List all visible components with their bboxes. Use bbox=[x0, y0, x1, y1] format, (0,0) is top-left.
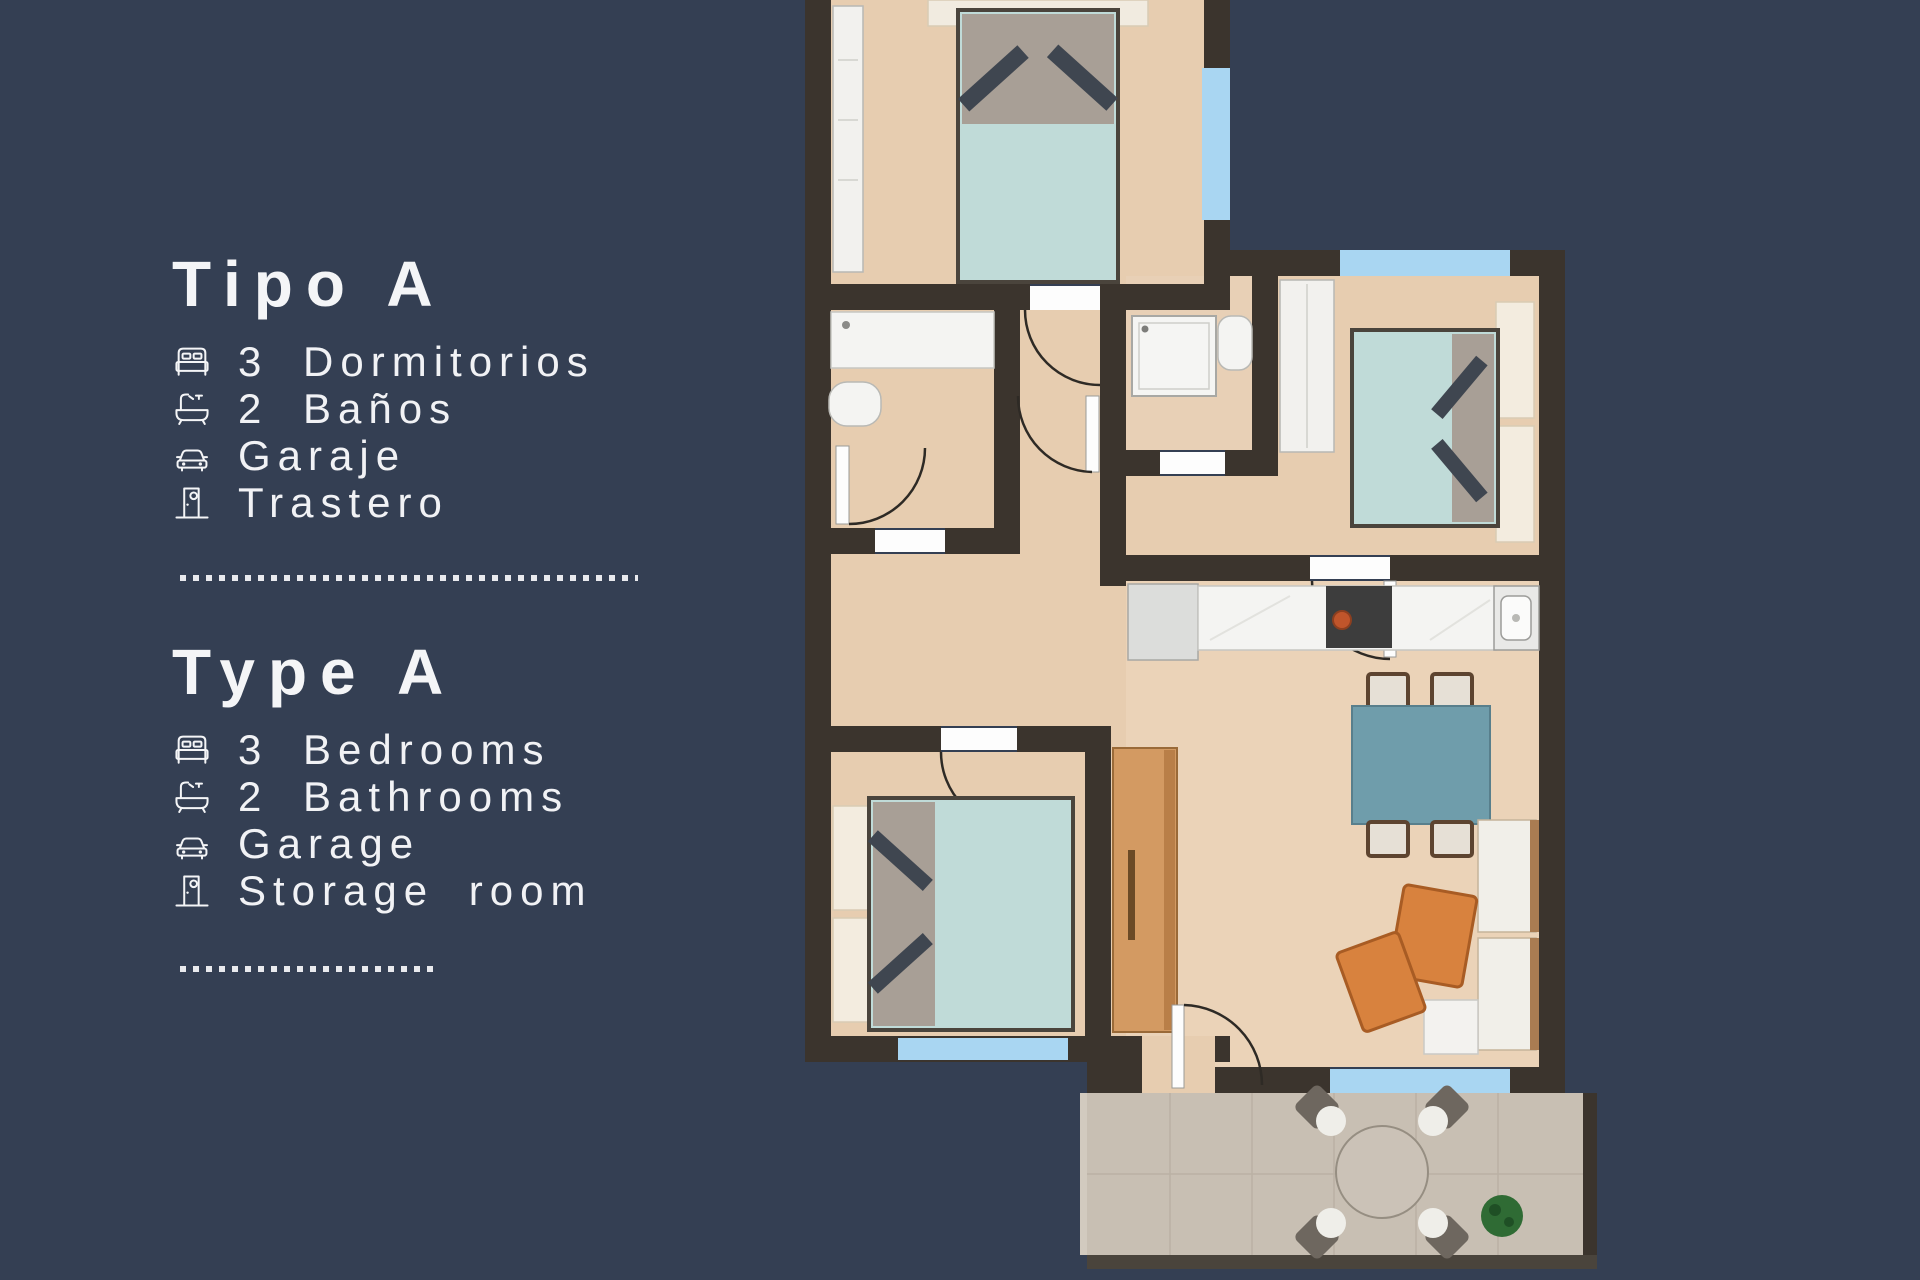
bed-icon bbox=[172, 342, 212, 382]
feature-row: 2 Baños bbox=[172, 385, 595, 432]
car-icon bbox=[172, 436, 212, 476]
feature-row: Garage bbox=[172, 820, 592, 867]
feature-row: 3 Dormitorios bbox=[172, 338, 595, 385]
doorway bbox=[941, 728, 1017, 750]
window-bedroom1 bbox=[1202, 68, 1230, 220]
dining-table bbox=[1352, 706, 1490, 824]
headboard bbox=[833, 918, 869, 1022]
sofa bbox=[1478, 820, 1536, 932]
feature-label: 2 Baños bbox=[238, 385, 457, 433]
doorway bbox=[1310, 557, 1390, 579]
feature-label: Garaje bbox=[238, 432, 406, 480]
dotted-divider-short bbox=[180, 966, 440, 972]
vanity-counter bbox=[831, 312, 994, 368]
feature-label: 2 Bathrooms bbox=[238, 773, 569, 821]
doorway bbox=[1030, 286, 1100, 310]
doorway bbox=[1160, 452, 1225, 474]
fridge bbox=[1128, 584, 1198, 660]
window-bedroom3 bbox=[898, 1038, 1068, 1060]
feature-label: Storage room bbox=[238, 867, 592, 915]
burner bbox=[1333, 611, 1351, 629]
feature-row: Garaje bbox=[172, 432, 595, 479]
handle bbox=[1128, 850, 1135, 940]
section-title: Type A bbox=[172, 636, 592, 708]
section-tipo-a: Tipo A 3 Dormitorios 2 Baños bbox=[172, 248, 595, 526]
headboard bbox=[1496, 426, 1534, 542]
headboard bbox=[833, 806, 869, 910]
feature-label: Garage bbox=[238, 820, 420, 868]
chair bbox=[1432, 674, 1472, 708]
door-leaf bbox=[1086, 396, 1099, 472]
chair bbox=[1432, 822, 1472, 856]
side-table bbox=[1424, 1000, 1478, 1054]
toilet bbox=[829, 382, 881, 426]
window-bedroom2 bbox=[1340, 250, 1510, 276]
toilet bbox=[1218, 316, 1252, 370]
dotted-divider-long bbox=[180, 575, 638, 581]
section-title: Tipo A bbox=[172, 248, 595, 320]
feature-row: Storage room bbox=[172, 867, 592, 914]
section-type-a: Type A 3 Bedrooms 2 Bathrooms bbox=[172, 636, 592, 914]
feature-label: 3 Dormitorios bbox=[238, 338, 595, 386]
bed-icon bbox=[172, 730, 212, 770]
bathtub-icon bbox=[172, 777, 212, 817]
headboard bbox=[1496, 302, 1534, 418]
faucet bbox=[842, 321, 850, 329]
door-leaf bbox=[836, 446, 849, 524]
feature-row: 3 Bedrooms bbox=[172, 726, 592, 773]
chair bbox=[1368, 822, 1408, 856]
chair bbox=[1368, 674, 1408, 708]
car-icon bbox=[172, 824, 212, 864]
page: Tipo A 3 Dormitorios 2 Baños bbox=[0, 0, 1920, 1280]
entrance-door-leaf bbox=[1172, 1005, 1184, 1088]
window-living-terrace bbox=[1330, 1069, 1510, 1093]
feature-row: Trastero bbox=[172, 479, 595, 526]
sofa bbox=[1478, 938, 1536, 1050]
kitchen bbox=[1128, 584, 1539, 660]
door-icon bbox=[172, 483, 212, 523]
feature-label: 3 Bedrooms bbox=[238, 726, 550, 774]
feature-row: 2 Bathrooms bbox=[172, 773, 592, 820]
feature-label: Trastero bbox=[238, 479, 449, 527]
doorway bbox=[875, 530, 945, 552]
bathtub-icon bbox=[172, 389, 212, 429]
door-icon bbox=[172, 871, 212, 911]
terrace bbox=[1080, 1083, 1597, 1269]
round-table bbox=[1336, 1126, 1428, 1218]
wardrobe bbox=[833, 6, 863, 272]
hall-wardrobe bbox=[1113, 748, 1177, 1032]
plant bbox=[1481, 1195, 1523, 1237]
